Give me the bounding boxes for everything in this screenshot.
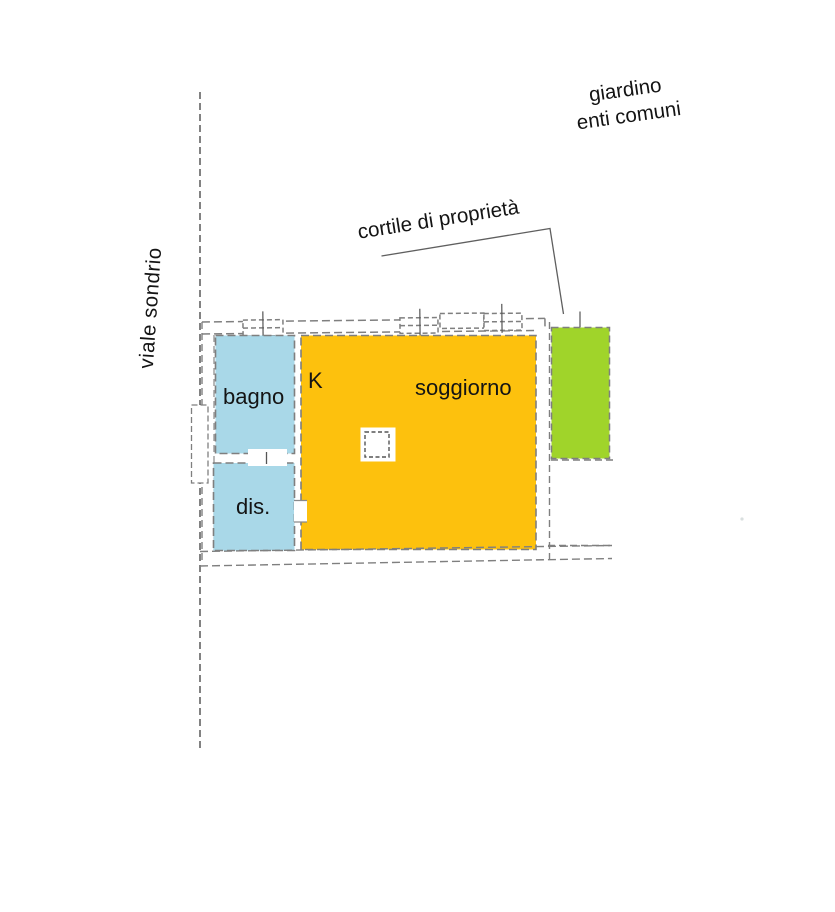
bottom-wall-bottom-line	[200, 559, 612, 567]
wall-pier	[440, 313, 484, 328]
courtyard-leader-line	[382, 229, 564, 315]
living-room-room	[301, 336, 536, 550]
pillar	[361, 428, 396, 462]
kitchen-label: K	[308, 368, 323, 394]
hallway-label: dis.	[236, 494, 270, 520]
window-icon	[484, 304, 522, 333]
wall-recess	[192, 405, 209, 483]
bathroom-label: bagno	[223, 384, 284, 410]
scan-speck	[740, 517, 743, 520]
door-opening-dis-soggiorno	[294, 501, 307, 523]
floor-plan-drawing	[0, 0, 835, 912]
door-opening-bagno-dis	[248, 449, 287, 466]
window-icon	[400, 309, 438, 336]
courtyard-area	[552, 328, 610, 459]
living-room-label: soggiorno	[415, 375, 512, 401]
floor-plan: viale sondrio giardino enti comuni corti…	[0, 0, 835, 912]
